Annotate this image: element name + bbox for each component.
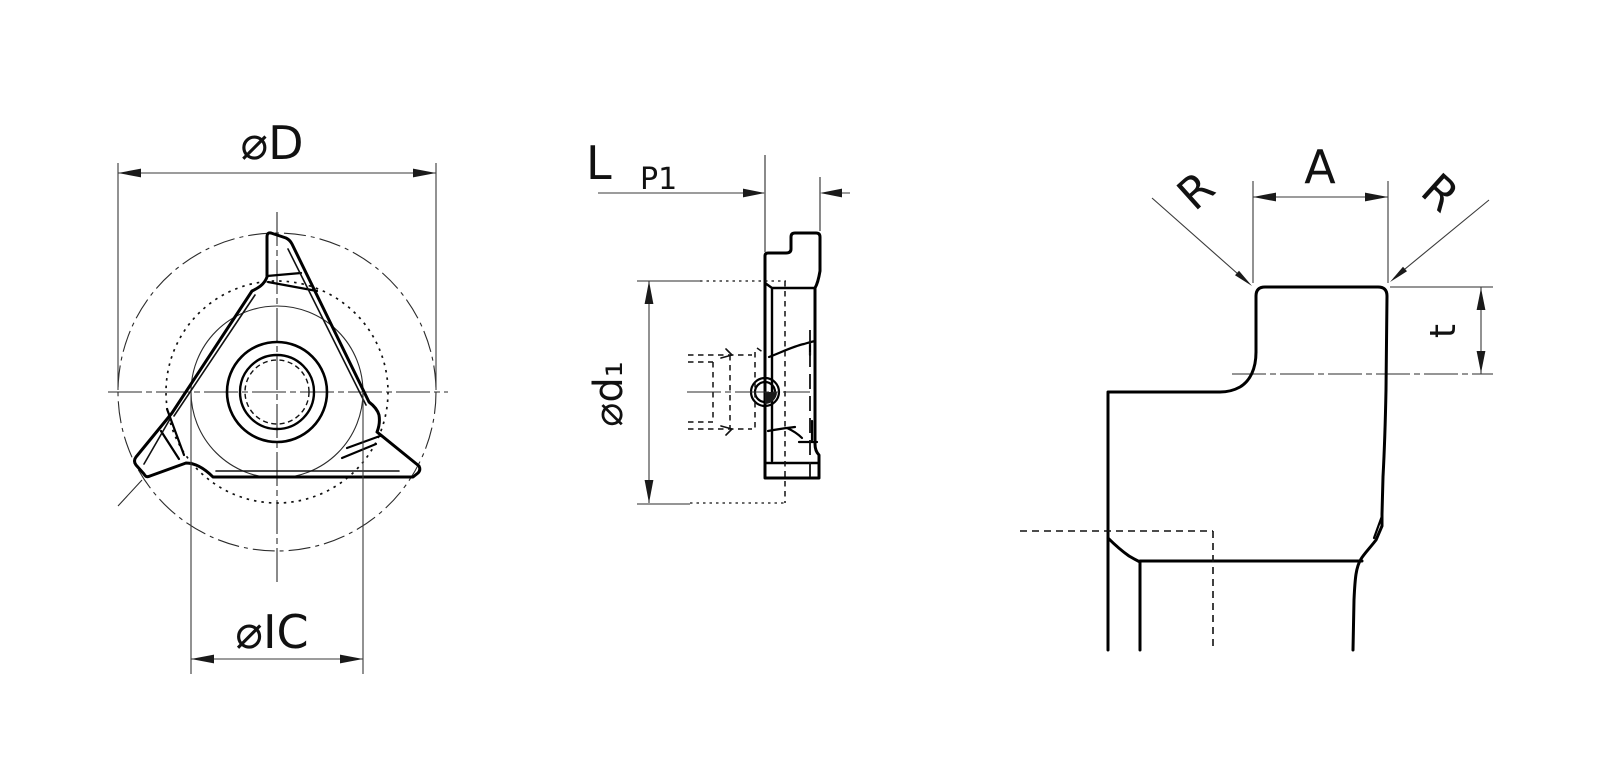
dim-ic-arrow-left	[191, 655, 214, 664]
dim-l-label: L	[586, 136, 612, 190]
profile-left-shoulder	[1108, 352, 1256, 650]
dim-a-label: A	[1304, 140, 1336, 194]
dim-a-arrow-right	[1365, 193, 1388, 202]
dim-d1-label: ⌀d₁	[586, 361, 632, 427]
side-hidden-small-dash	[757, 348, 764, 353]
dim-r-right-label: R	[1411, 164, 1468, 222]
dim-t-arrow-top	[1477, 288, 1486, 310]
dim-ic-label: ⌀IC	[235, 605, 308, 659]
profile-hidden-lines	[1020, 531, 1213, 650]
dim-p1-arrow-left	[743, 189, 765, 198]
leader-r-left-arrow	[1235, 271, 1252, 286]
dim-p1-arrow-right	[820, 189, 842, 198]
profile-view: A R R t	[1020, 140, 1493, 650]
front-view: ⌀D ⌀IC	[108, 116, 448, 674]
dim-od-arrow-right	[413, 169, 436, 178]
side-grind-curve-upper	[769, 341, 815, 357]
dim-od-label: ⌀D	[240, 116, 303, 170]
profile-lower-shoulder	[1108, 538, 1362, 650]
drawing-canvas: ⌀D ⌀IC ⌀d₁	[0, 0, 1600, 770]
dim-d1-arrow-top	[645, 281, 654, 304]
tip-left-detail-lines	[161, 409, 184, 459]
profile-tooth-outline	[1256, 287, 1387, 650]
dim-od-arrow-left	[118, 169, 141, 178]
dim-t-arrow-bottom	[1477, 351, 1486, 373]
dim-ic-arrow-right	[340, 655, 363, 664]
dim-d1-arrow-bottom	[645, 480, 654, 503]
tip-left-overshoot-line	[118, 480, 142, 506]
side-facet-lines	[765, 283, 815, 461]
dim-p1-label: P1	[640, 162, 677, 197]
dim-r-left-label: R	[1168, 162, 1225, 220]
dim-t-label: t	[1423, 324, 1464, 338]
tip-right-detail-lines	[342, 436, 380, 458]
dim-a-arrow-left	[1253, 193, 1276, 202]
leader-r-right-arrow	[1390, 267, 1407, 282]
side-view: ⌀d₁ L P1	[586, 136, 850, 504]
